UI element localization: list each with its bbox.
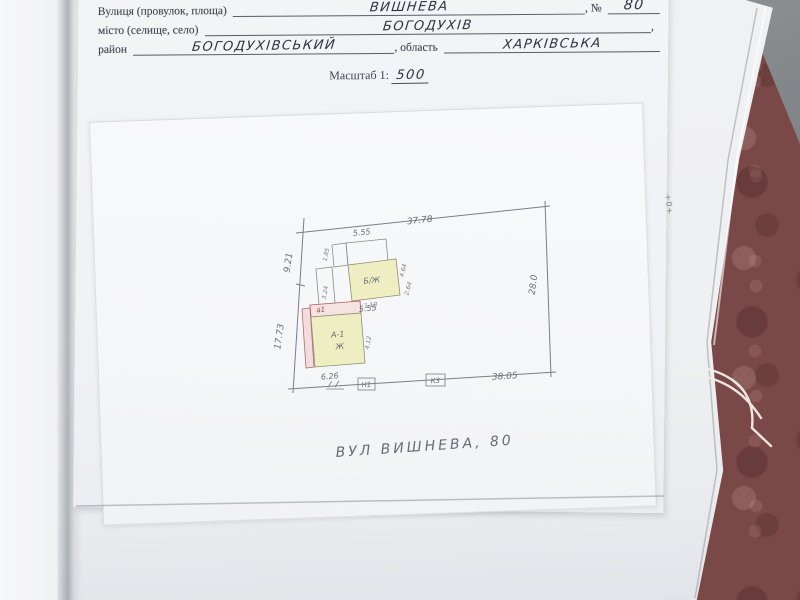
district-label: район	[98, 44, 133, 56]
district-field: БОГОДУХІВСЬКИЙ	[133, 38, 395, 56]
street-field: ВИШНЕВА	[233, 0, 585, 17]
number-value: 80	[622, 0, 645, 13]
region-value: ХАРКІВСЬКА	[502, 36, 602, 53]
scale-label: Масштаб 1:	[329, 68, 389, 82]
number-field: 80	[608, 0, 660, 14]
photo-of-document: Вулиця (провулок, площа) ВИШНЕВА , № 80 …	[0, 0, 800, 600]
street-row: Вулиця (провулок, площа) ВИШНЕВА , № 80	[98, 0, 660, 18]
street-label: Вулиця (провулок, площа)	[98, 5, 233, 18]
city-field: БОГОДУХІВ	[204, 17, 651, 36]
street-value: ВИШНЕВА	[369, 0, 450, 15]
city-label: місто (селище, село)	[98, 24, 205, 37]
region-label: , область	[394, 42, 443, 54]
city-value: БОГОДУХІВ	[382, 18, 474, 34]
left-paper-margin	[0, 0, 58, 600]
district-value: БОГОДУХІВСЬКИЙ	[191, 38, 337, 55]
plan-sheet	[89, 102, 657, 525]
city-suffix: ,	[651, 21, 660, 33]
region-field: ХАРКІВСЬКА	[444, 36, 660, 54]
edge-note-scribble: +0+	[663, 193, 674, 215]
scale-value: 500	[391, 67, 430, 84]
city-row: місто (селище, село) БОГОДУХІВ ,	[98, 17, 660, 37]
paper-stack: Вулиця (провулок, площа) ВИШНЕВА , № 80 …	[0, 0, 800, 600]
address-form: Вулиця (провулок, площа) ВИШНЕВА , № 80 …	[98, 0, 661, 86]
district-row: район БОГОДУХІВСЬКИЙ , область ХАРКІВСЬК…	[98, 36, 660, 56]
number-label: , №	[585, 2, 608, 14]
